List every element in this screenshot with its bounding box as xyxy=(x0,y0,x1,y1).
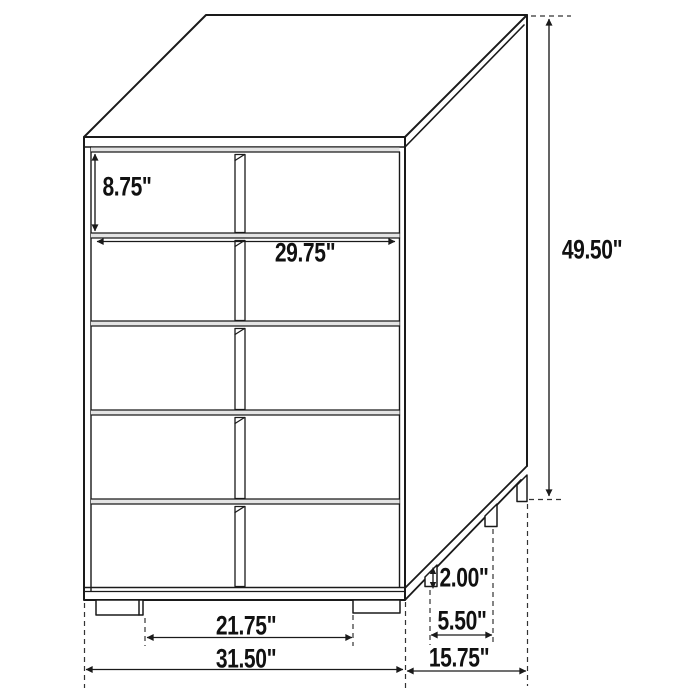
chest-dimension-diagram: 8.75" 29.75" 49.50" 2.00" 5.50" 21.75" 3… xyxy=(0,0,700,700)
side-back-leg xyxy=(517,475,527,502)
dim-label-overall-depth: 15.75" xyxy=(429,645,489,672)
dim-label-interior-width: 29.75" xyxy=(275,240,335,267)
dim-label-drawer-height: 8.75" xyxy=(102,174,151,201)
dim-label-side-leg-spacing: 5.50" xyxy=(437,608,486,635)
front-left-leg xyxy=(96,600,143,615)
chest-line-drawing xyxy=(0,0,700,700)
front-right-leg xyxy=(353,600,400,613)
drawer-handles xyxy=(235,155,245,587)
dim-label-front-leg-spacing: 21.75" xyxy=(216,613,276,640)
dim-label-overall-width: 31.50" xyxy=(216,646,276,673)
dim-label-leg-height: 2.00" xyxy=(439,565,488,592)
dim-label-overall-height: 49.50" xyxy=(562,237,622,264)
